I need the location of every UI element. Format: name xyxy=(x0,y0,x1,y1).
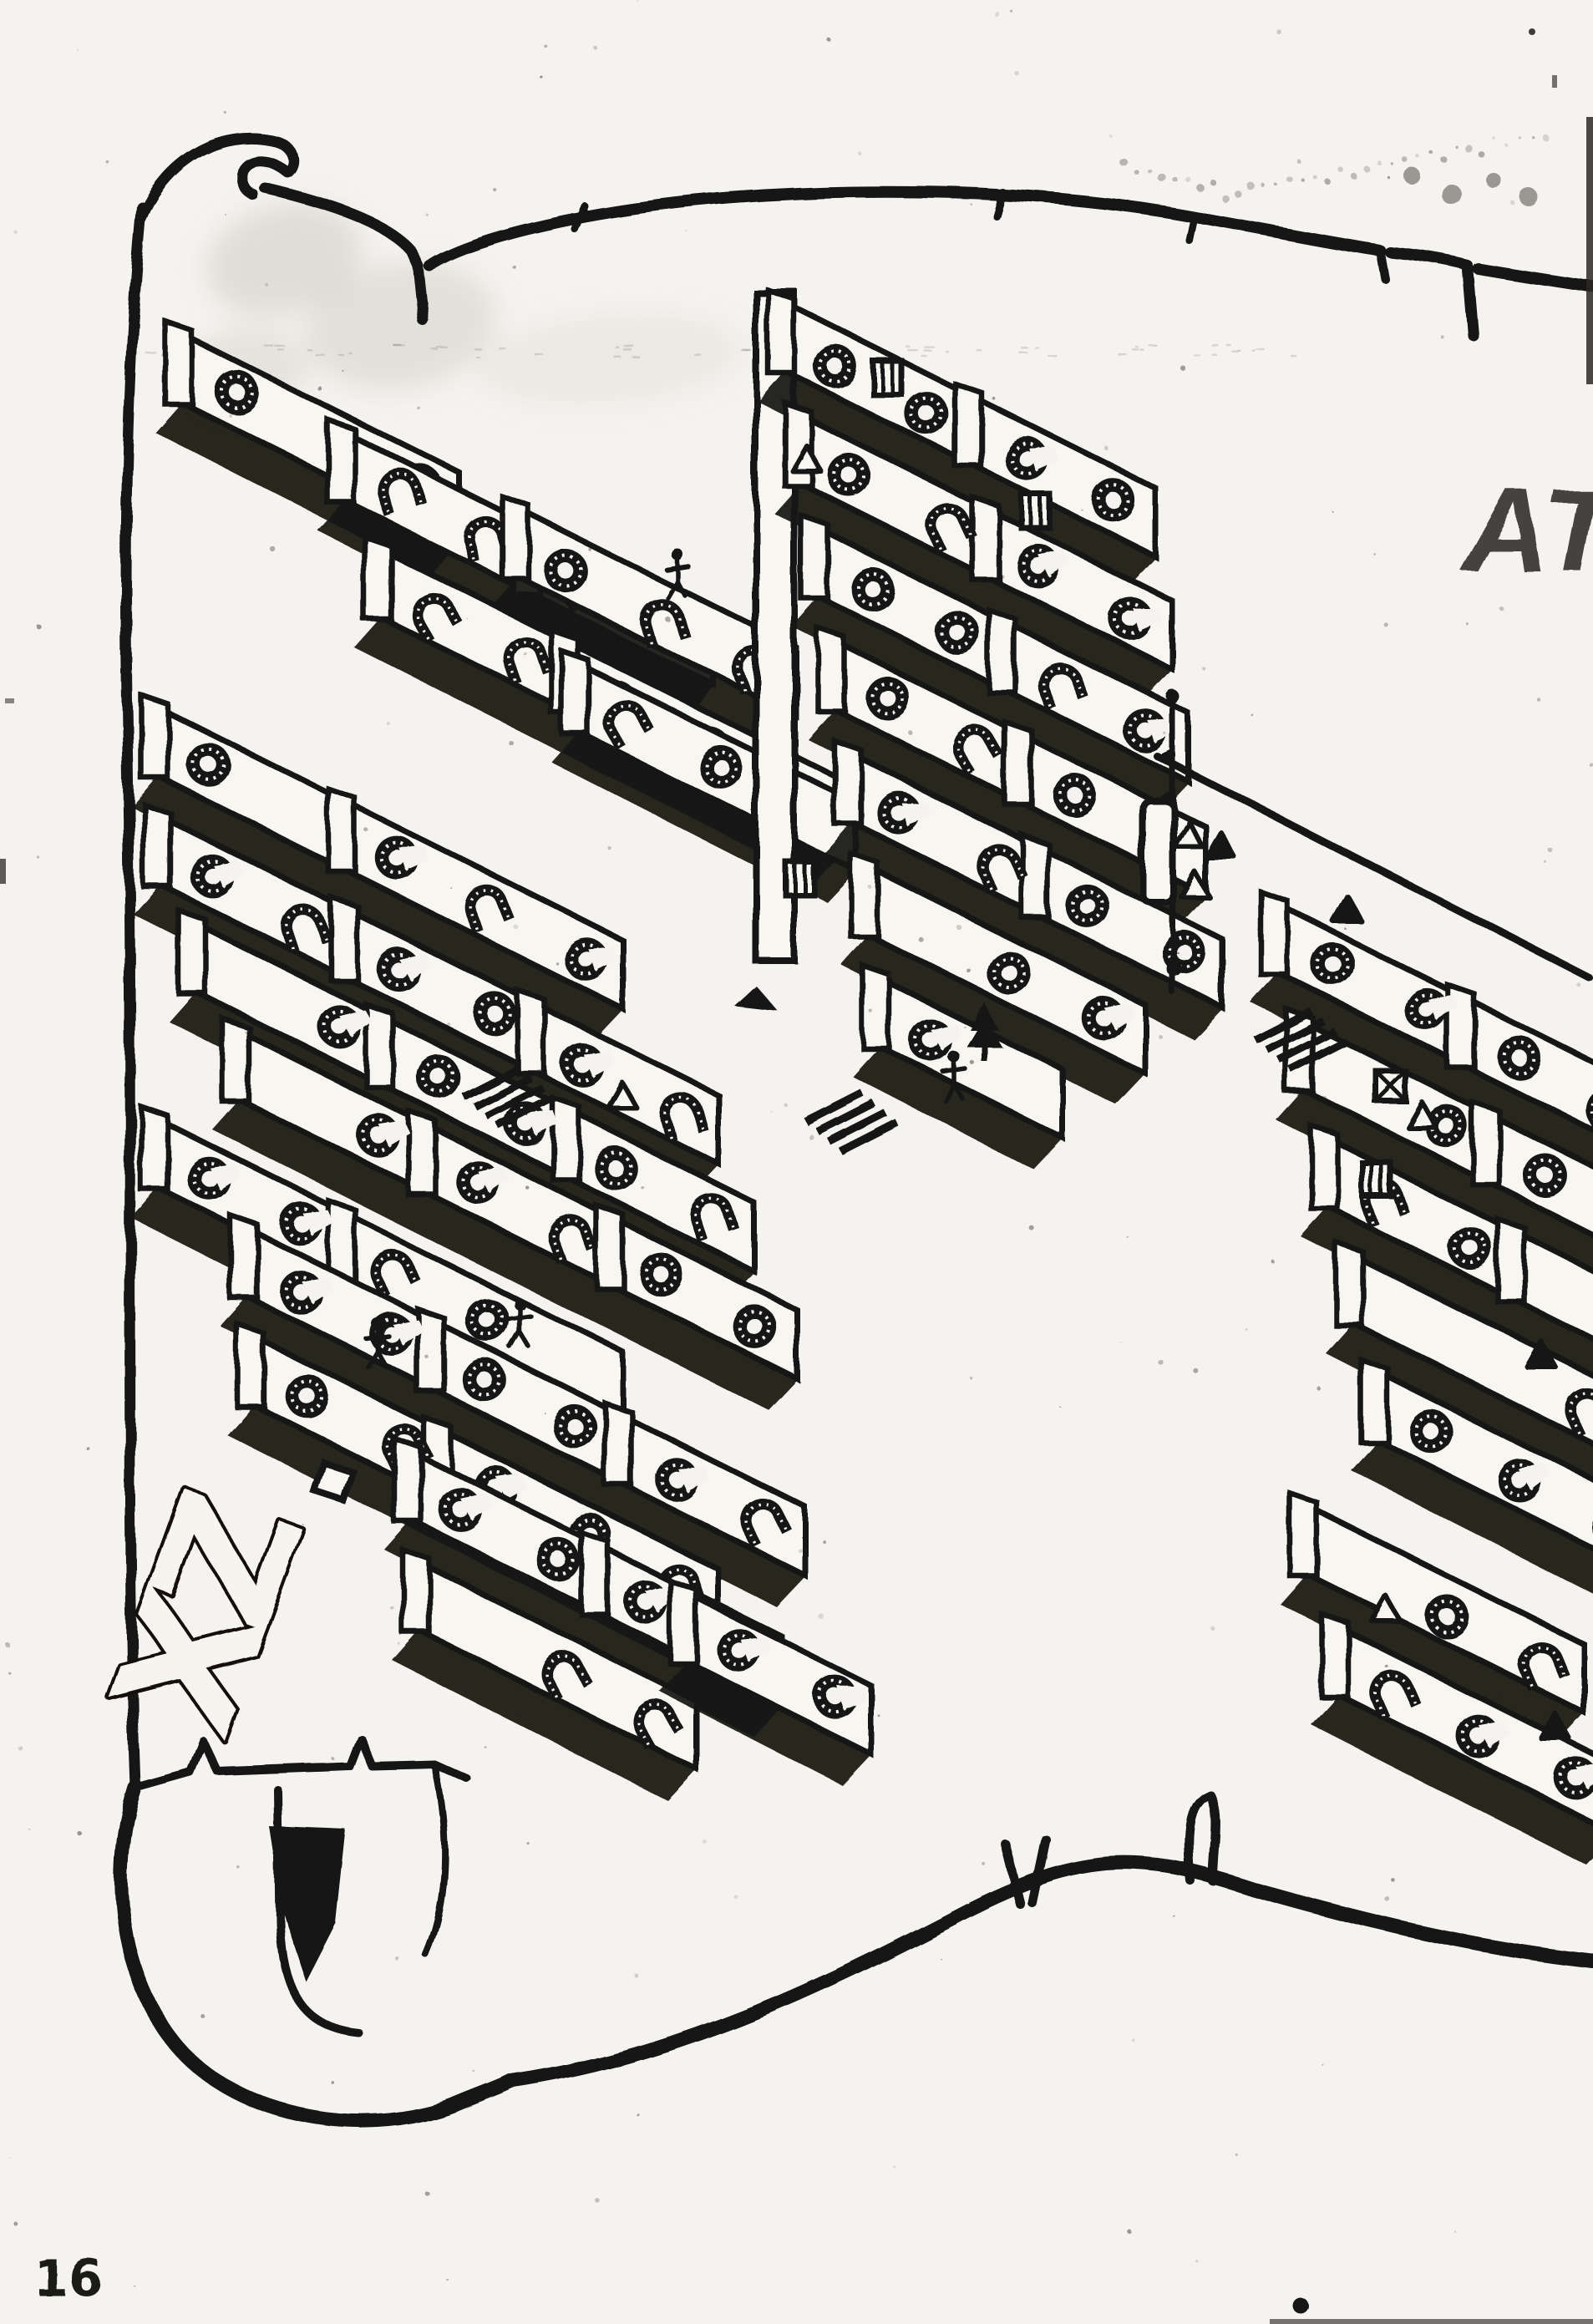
wall-post xyxy=(581,1532,608,1615)
scroll-label-group: XZ xyxy=(76,1475,341,1758)
wall-post xyxy=(1311,1125,1337,1208)
xwindow-icon xyxy=(1376,1071,1406,1101)
page-title-fragment: AT xyxy=(1461,464,1593,597)
wall-post xyxy=(331,897,358,980)
wall-post xyxy=(328,789,355,871)
wall-post xyxy=(670,1581,697,1663)
wall-post xyxy=(364,536,391,619)
page-number: 16 xyxy=(33,2250,104,2308)
wall-post xyxy=(862,965,889,1048)
wall-post xyxy=(1290,1493,1317,1576)
wall-post xyxy=(165,322,192,404)
wall-post xyxy=(1005,722,1032,804)
wall-post xyxy=(1261,891,1287,974)
wall-post xyxy=(972,496,998,579)
wall-post xyxy=(561,651,588,733)
wall-post xyxy=(955,383,982,466)
map-cluster-right xyxy=(1157,756,1593,1865)
wall-post xyxy=(1498,1219,1525,1302)
window-icon xyxy=(873,361,901,394)
wall-post xyxy=(1022,835,1048,917)
wall-post xyxy=(851,854,878,936)
wall-post xyxy=(237,1324,264,1407)
wall-post xyxy=(366,1004,393,1087)
wall-post xyxy=(518,991,545,1073)
wall-post xyxy=(1336,1242,1362,1325)
triangle-icon xyxy=(1207,833,1235,858)
window-icon xyxy=(786,862,814,896)
wall-post xyxy=(403,1550,429,1632)
scroll-map-illustration: XZ AT 16 xyxy=(0,0,1593,2324)
wall-post xyxy=(327,419,354,502)
window-icon xyxy=(1362,1163,1391,1196)
scroll-label: XZ xyxy=(76,1475,341,1758)
wall-post xyxy=(141,695,168,778)
wall-post xyxy=(1473,1102,1499,1185)
wall-post xyxy=(179,911,205,993)
wall-post xyxy=(1361,1359,1388,1442)
wall-post xyxy=(141,1107,168,1190)
wall-post xyxy=(502,496,529,579)
wall-post xyxy=(231,1215,257,1298)
scanned-magazine-page: XZ AT 16 xyxy=(0,0,1593,2324)
wall-post xyxy=(409,1112,436,1195)
wall-post xyxy=(553,1098,580,1180)
wall-post xyxy=(394,1439,421,1521)
wall-post xyxy=(768,290,794,373)
window-icon xyxy=(1022,495,1050,528)
wall-post xyxy=(1322,1614,1348,1697)
wall-post xyxy=(818,628,845,711)
square-icon xyxy=(313,1461,351,1499)
wall-post xyxy=(988,609,1015,692)
wall-post xyxy=(605,1403,632,1485)
wall-post xyxy=(418,1309,444,1392)
wall-post xyxy=(596,1205,623,1288)
wall-post xyxy=(801,515,828,598)
wall-post xyxy=(835,741,861,824)
blob-icon xyxy=(1293,2298,1309,2314)
triangle-icon xyxy=(1333,896,1362,921)
door-icon xyxy=(1143,800,1173,902)
wall-post xyxy=(144,804,170,886)
stairs-icon xyxy=(804,1088,899,1154)
